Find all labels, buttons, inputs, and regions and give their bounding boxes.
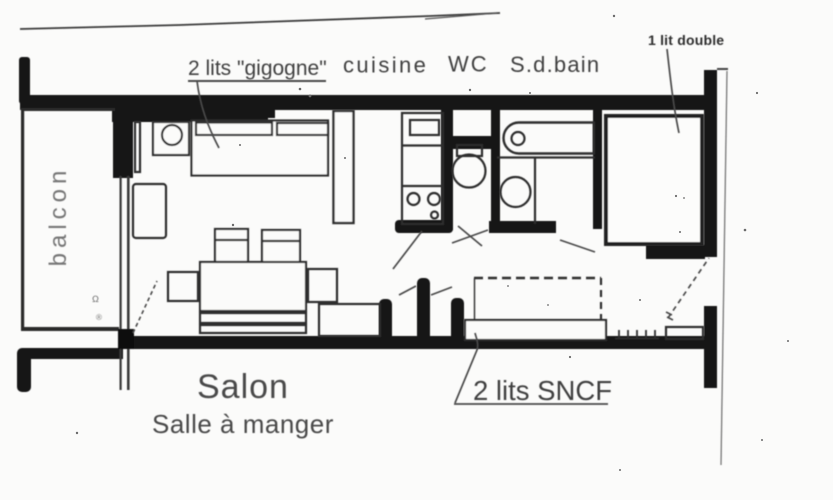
svg-text:cuisine: cuisine [343,53,428,78]
svg-text:Salon: Salon [197,368,289,406]
svg-text:1 lit double: 1 lit double [648,32,724,48]
svg-text:balcon: balcon [45,166,72,267]
svg-text:S.d.bain: S.d.bain [510,52,600,77]
svg-text:2 lits "gigogne": 2 lits "gigogne" [188,57,327,80]
svg-text:®: ® [96,313,102,322]
svg-text:WC: WC [448,52,489,77]
svg-text:2 lits SNCF: 2 lits SNCF [473,375,612,406]
svg-text:Salle à manger: Salle à manger [152,409,334,439]
svg-text:Ω: Ω [92,294,99,304]
